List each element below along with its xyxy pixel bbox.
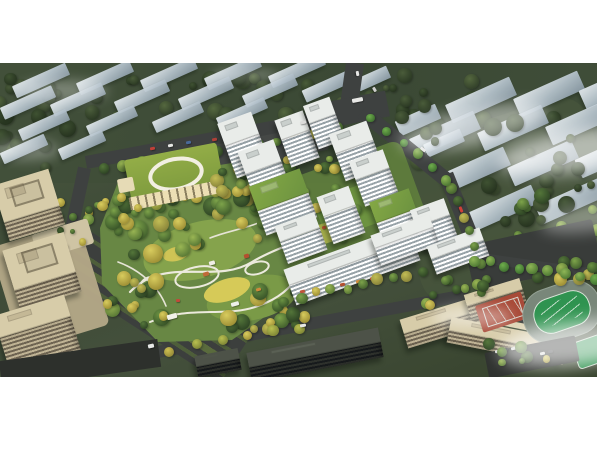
tree: [144, 208, 155, 219]
kindergarten-wing: [117, 177, 135, 194]
tree: [216, 185, 228, 197]
cloud: [432, 306, 512, 328]
tree: [164, 347, 174, 357]
tree: [85, 206, 93, 214]
tree: [461, 284, 470, 293]
tree: [128, 249, 140, 261]
tree: [515, 264, 525, 274]
tree: [99, 163, 109, 173]
cloud: [210, 68, 280, 82]
roof-detail: [336, 130, 351, 140]
rooftop-court: [9, 179, 44, 207]
tree: [560, 268, 571, 279]
cars: [356, 71, 360, 76]
tree: [218, 168, 226, 176]
tree: [312, 287, 320, 295]
tree: [153, 216, 169, 232]
tree: [325, 284, 335, 294]
tree: [69, 213, 77, 221]
tree: [218, 335, 228, 345]
tree: [453, 196, 463, 206]
tree: [366, 114, 374, 122]
tree: [452, 285, 461, 294]
park-structures: [176, 299, 180, 302]
tree: [286, 307, 301, 322]
tree: [590, 274, 597, 286]
tree: [486, 256, 496, 266]
tree: [236, 217, 248, 229]
tree: [127, 303, 137, 313]
tree: [173, 217, 186, 230]
roof-detail: [323, 194, 336, 203]
tree: [148, 273, 164, 289]
tree: [192, 339, 202, 349]
tree: [575, 272, 584, 281]
tree: [425, 300, 435, 310]
tree: [103, 299, 112, 308]
cloud: [18, 80, 108, 102]
tree: [429, 291, 437, 299]
tree: [216, 199, 231, 214]
tree: [267, 325, 279, 337]
tree: [326, 156, 332, 162]
tree: [587, 262, 597, 273]
roof-detail: [282, 221, 297, 230]
roof-detail: [202, 354, 217, 360]
roof-detail: [245, 149, 259, 159]
roof-detail: [259, 181, 279, 194]
tree: [110, 207, 120, 217]
tree: [358, 279, 368, 289]
tree: [143, 244, 162, 263]
tree: [220, 310, 236, 326]
page: [0, 0, 600, 450]
roof-detail: [281, 118, 292, 127]
tree: [469, 256, 480, 267]
aerial-rendering: [0, 63, 597, 377]
tree: [441, 175, 451, 185]
tree: [79, 238, 86, 245]
tree: [344, 285, 353, 294]
tree: [371, 273, 383, 285]
tree: [483, 338, 495, 350]
roof-detail: [7, 308, 33, 321]
rooftop-court: [20, 243, 58, 273]
tree: [570, 257, 582, 269]
tree: [389, 273, 398, 282]
roof-detail: [225, 121, 239, 131]
tree: [97, 201, 108, 212]
roof-detail: [356, 158, 369, 167]
tree: [299, 311, 310, 322]
roof-detail: [377, 198, 392, 208]
tree: [117, 271, 132, 286]
tree: [188, 233, 201, 246]
roof-detail: [309, 104, 320, 112]
tree: [117, 193, 126, 202]
tree: [252, 283, 268, 299]
